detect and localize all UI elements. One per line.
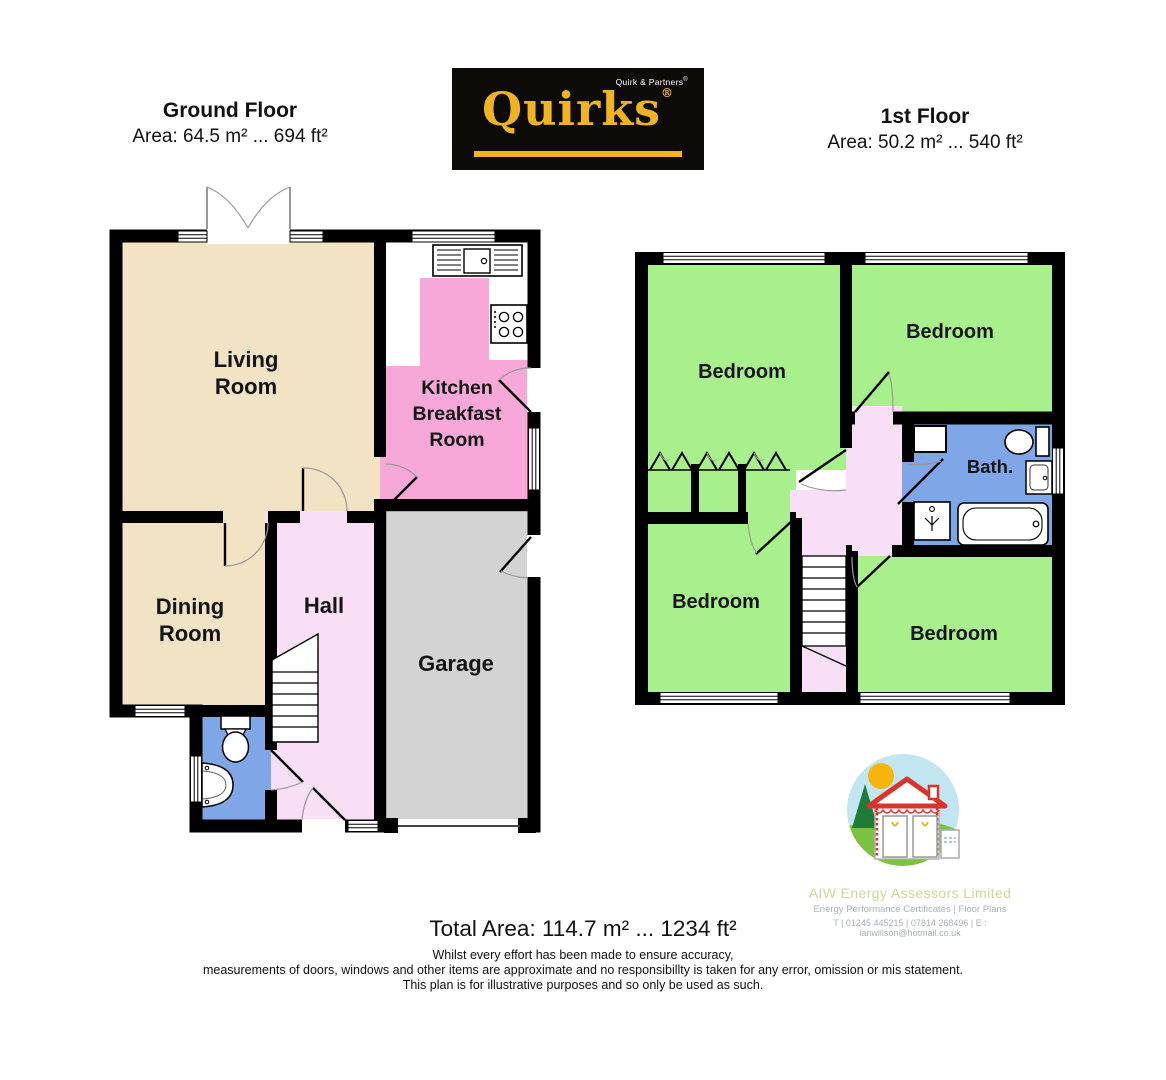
ground-floor-plan: Living Room Kitchen Breakfast Room Dinin…: [100, 160, 550, 850]
quirks-underline-bar: [474, 151, 682, 157]
first-floor-plan: Bedroom Bedroom Bedroom Bedroom Bath.: [620, 240, 1080, 720]
bath-basin: [1026, 461, 1052, 494]
kitchen-hob: [491, 305, 527, 343]
kitchen-sink: [433, 245, 522, 276]
aiw-services: Energy Performance Certificates | Floor …: [795, 904, 1025, 915]
bedroom-bl-label: Bedroom: [672, 591, 760, 613]
disclaimer-line-3: This plan is for illustrative purposes a…: [83, 978, 1083, 993]
kitchen-label-1: Kitchen: [421, 377, 493, 399]
french-doors: [207, 187, 290, 229]
first-floor-area: Area: 50.2 m² ... 540 ft²: [725, 130, 1125, 156]
living-room-label-1: Living: [214, 347, 279, 372]
disclaimer-line-1: Whilst every effort has been made to ens…: [83, 948, 1083, 963]
kitchen-label-3: Room: [429, 429, 484, 451]
quirks-brand-text: Quirks®: [452, 82, 704, 136]
bedroom-tr-label: Bedroom: [906, 321, 994, 343]
living-room-label-2: Room: [215, 374, 277, 399]
bath-label: Bath.: [967, 456, 1013, 477]
kitchen-label-2: Breakfast: [413, 403, 502, 425]
aiw-logo-block: AIW Energy Assessors Limited Energy Perf…: [795, 748, 1025, 938]
ground-floor-area: Area: 64.5 m² ... 694 ft²: [30, 124, 430, 150]
garage-label: Garage: [418, 651, 494, 676]
first-floor-title: 1st Floor: [725, 104, 1125, 130]
sun-icon: [868, 763, 894, 789]
floorplan-page: Ground Floor Area: 64.5 m² ... 694 ft² Q…: [0, 0, 1166, 1080]
dining-room-label-1: Dining: [156, 594, 224, 619]
disclaimer-line-2: measurements of doors, windows and other…: [83, 963, 1083, 978]
ground-room-fills: [110, 236, 534, 826]
ground-floor-title-block: Ground Floor Area: 64.5 m² ... 694 ft²: [30, 98, 430, 150]
shower: [914, 502, 950, 540]
quirks-logo: Quirk & Partners® Quirks®: [452, 68, 704, 170]
bathtub: [958, 503, 1048, 545]
airing-cupboard: [914, 426, 946, 452]
dining-room-label-2: Room: [159, 621, 221, 646]
bath-toilet: [1005, 427, 1049, 456]
wc-toilet: [221, 716, 250, 762]
bedroom-tl-label: Bedroom: [698, 361, 786, 383]
aiw-company-name: AIW Energy Assessors Limited: [795, 885, 1025, 901]
total-area-text: Total Area: 114.7 m² ... 1234 ft²: [183, 916, 983, 942]
hall-label: Hall: [304, 593, 344, 618]
first-floor-title-block: 1st Floor Area: 50.2 m² ... 540 ft²: [725, 104, 1125, 156]
aiw-house-logo: [795, 748, 1025, 878]
bedroom-br-label: Bedroom: [910, 623, 998, 645]
disclaimer-block: Whilst every effort has been made to ens…: [83, 948, 1083, 993]
ground-floor-title: Ground Floor: [30, 98, 430, 124]
